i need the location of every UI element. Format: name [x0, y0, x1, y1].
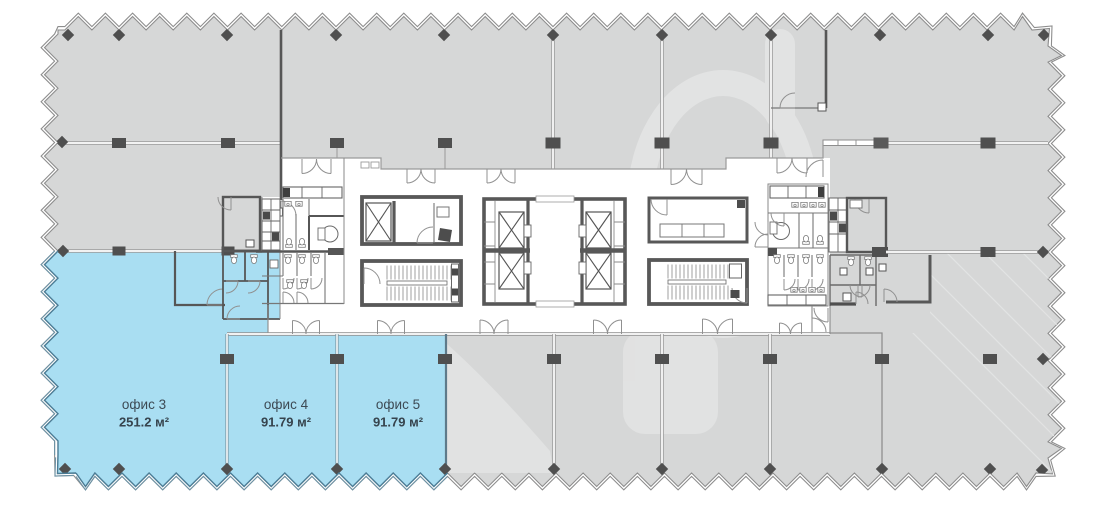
- svg-text:офис 3: офис 3: [122, 397, 166, 412]
- svg-text:офис 4: офис 4: [264, 397, 309, 412]
- svg-text:91.79 м²: 91.79 м²: [373, 415, 424, 430]
- svg-text:офис 5: офис 5: [376, 397, 420, 412]
- svg-text:251.2 м²: 251.2 м²: [119, 415, 170, 430]
- svg-text:91.79 м²: 91.79 м²: [261, 415, 312, 430]
